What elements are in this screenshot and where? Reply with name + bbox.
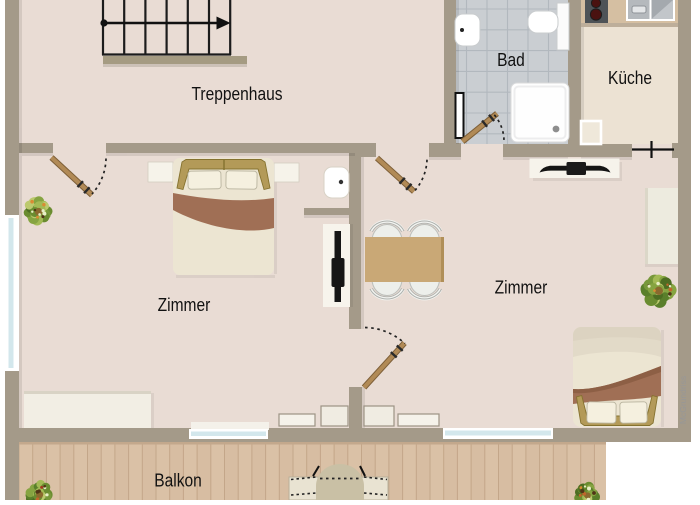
- svg-text:Küche: Küche: [608, 68, 652, 89]
- svg-text:McGrundriss: McGrundriss: [678, 376, 688, 424]
- svg-text:Zimmer: Zimmer: [495, 277, 548, 298]
- svg-text:Treppenhaus: Treppenhaus: [192, 84, 283, 105]
- svg-text:Zimmer: Zimmer: [158, 295, 211, 316]
- svg-text:Bad: Bad: [497, 50, 525, 71]
- svg-text:Balkon: Balkon: [154, 470, 201, 491]
